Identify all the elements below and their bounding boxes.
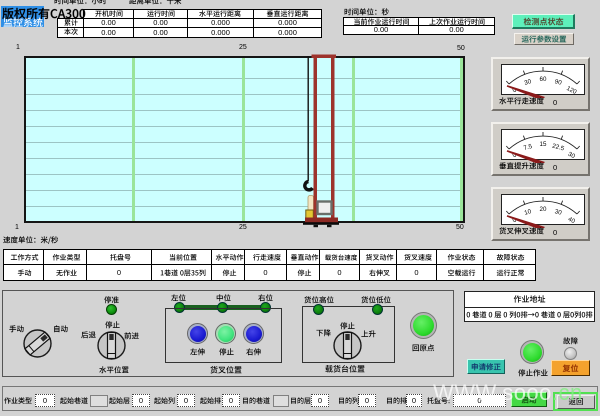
svg-text:20: 20: [540, 206, 547, 213]
svg-text:60: 60: [540, 76, 547, 83]
svg-text:15: 15: [540, 141, 547, 148]
